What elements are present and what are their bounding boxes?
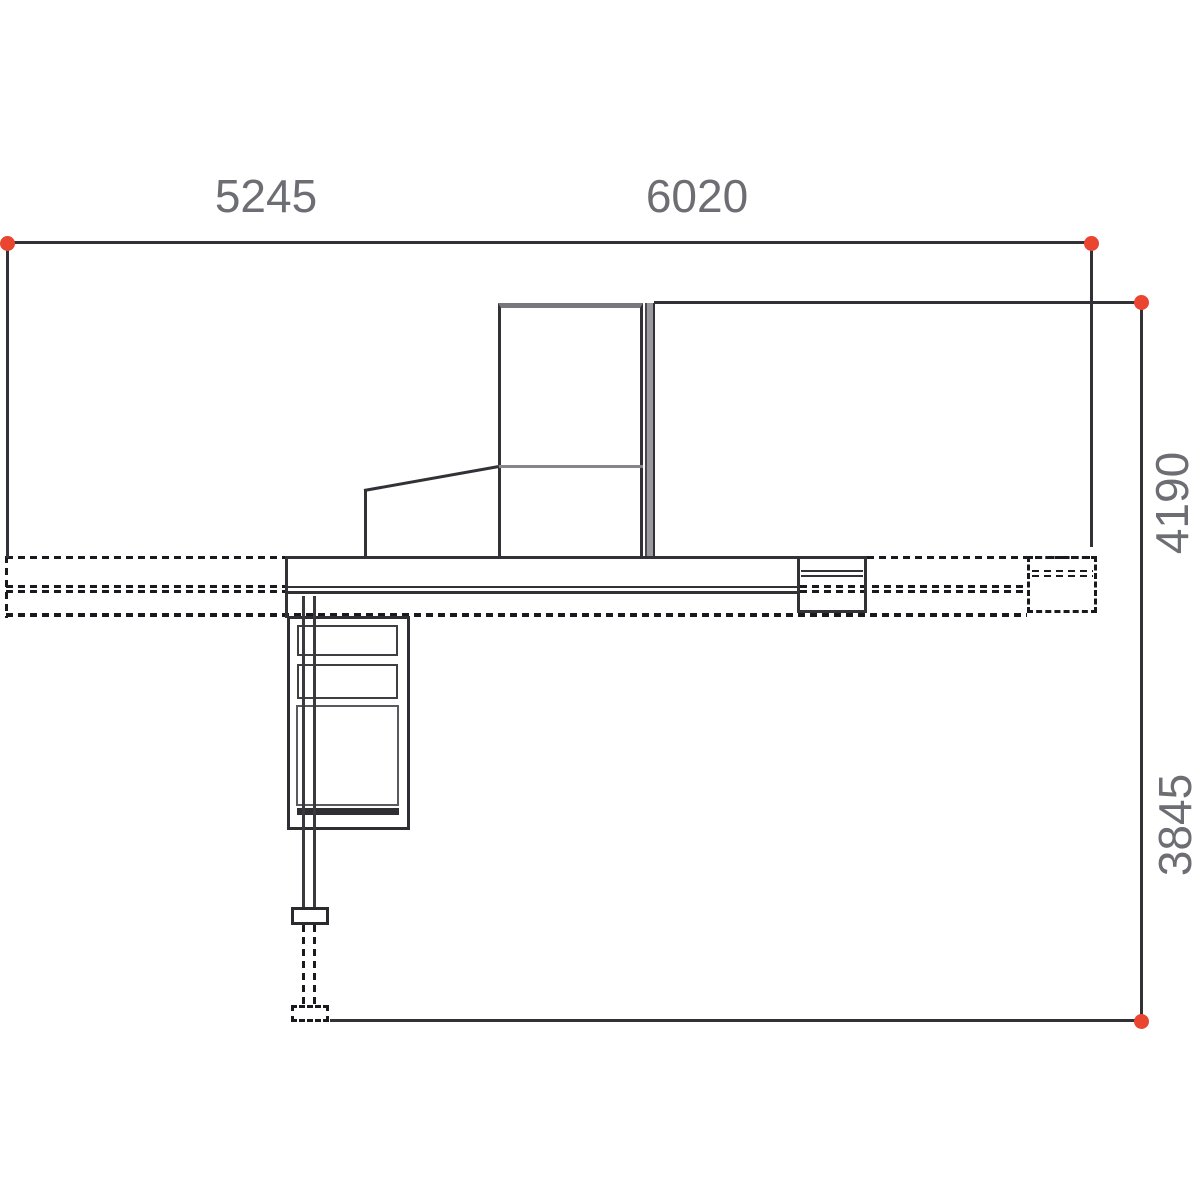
phantom-bed-mid-line-left-1 xyxy=(6,585,287,588)
dim-endpoint-bottom-right xyxy=(1134,1014,1149,1029)
phantom-tailstock-line-1 xyxy=(1032,570,1093,572)
phantom-rod-left-edge xyxy=(302,925,305,1007)
dim-label-top-left: 5245 xyxy=(166,173,366,219)
dimension-drawing: 5245 6020 4190 3845 xyxy=(0,0,1200,1200)
dim-endpoint-top-right xyxy=(1084,236,1099,251)
bed-bottom-line-1 xyxy=(287,586,797,588)
dim-endpoint-top-left xyxy=(0,236,15,251)
dim-endpoint-right-upper xyxy=(1134,295,1149,310)
phantom-tailstock-box xyxy=(1027,556,1097,613)
tailstock-line-2 xyxy=(801,575,863,577)
dim-line-bottom xyxy=(330,1019,1143,1022)
dim-line-upper-right xyxy=(654,301,1144,304)
phantom-rod-foot xyxy=(291,1005,329,1022)
bed-bottom-line-2 xyxy=(287,591,797,594)
rod-crossbar xyxy=(291,907,329,925)
bed-top-edge xyxy=(287,556,867,559)
dim-extension-left xyxy=(6,241,9,558)
dim-label-right-lower: 3845 xyxy=(1152,725,1198,925)
tailstock-line-1 xyxy=(801,570,863,572)
slope-cover-left-edge xyxy=(364,490,367,558)
support-rod xyxy=(302,596,316,910)
phantom-bed-left-edge xyxy=(5,556,8,618)
phantom-bed-top-left xyxy=(6,556,287,559)
dim-extension-right xyxy=(1090,241,1093,547)
phantom-rod-right-edge xyxy=(313,925,316,1007)
phantom-tailstock-line-2 xyxy=(1032,575,1093,577)
machine-column xyxy=(498,303,643,558)
machine-column-mid-line xyxy=(498,465,643,468)
dim-label-top-right: 6020 xyxy=(597,173,797,219)
machine-column-rail xyxy=(645,303,655,558)
dim-label-right-upper: 4190 xyxy=(1149,403,1195,603)
bed-left-edge xyxy=(285,556,288,618)
slope-cover-line xyxy=(364,465,499,492)
phantom-bed-bottom xyxy=(6,613,1027,617)
phantom-bed-mid-line-left-2 xyxy=(6,590,287,593)
dim-line-top xyxy=(7,241,1092,244)
dim-line-right-vertical xyxy=(1140,301,1143,1022)
tailstock-box xyxy=(797,556,867,613)
